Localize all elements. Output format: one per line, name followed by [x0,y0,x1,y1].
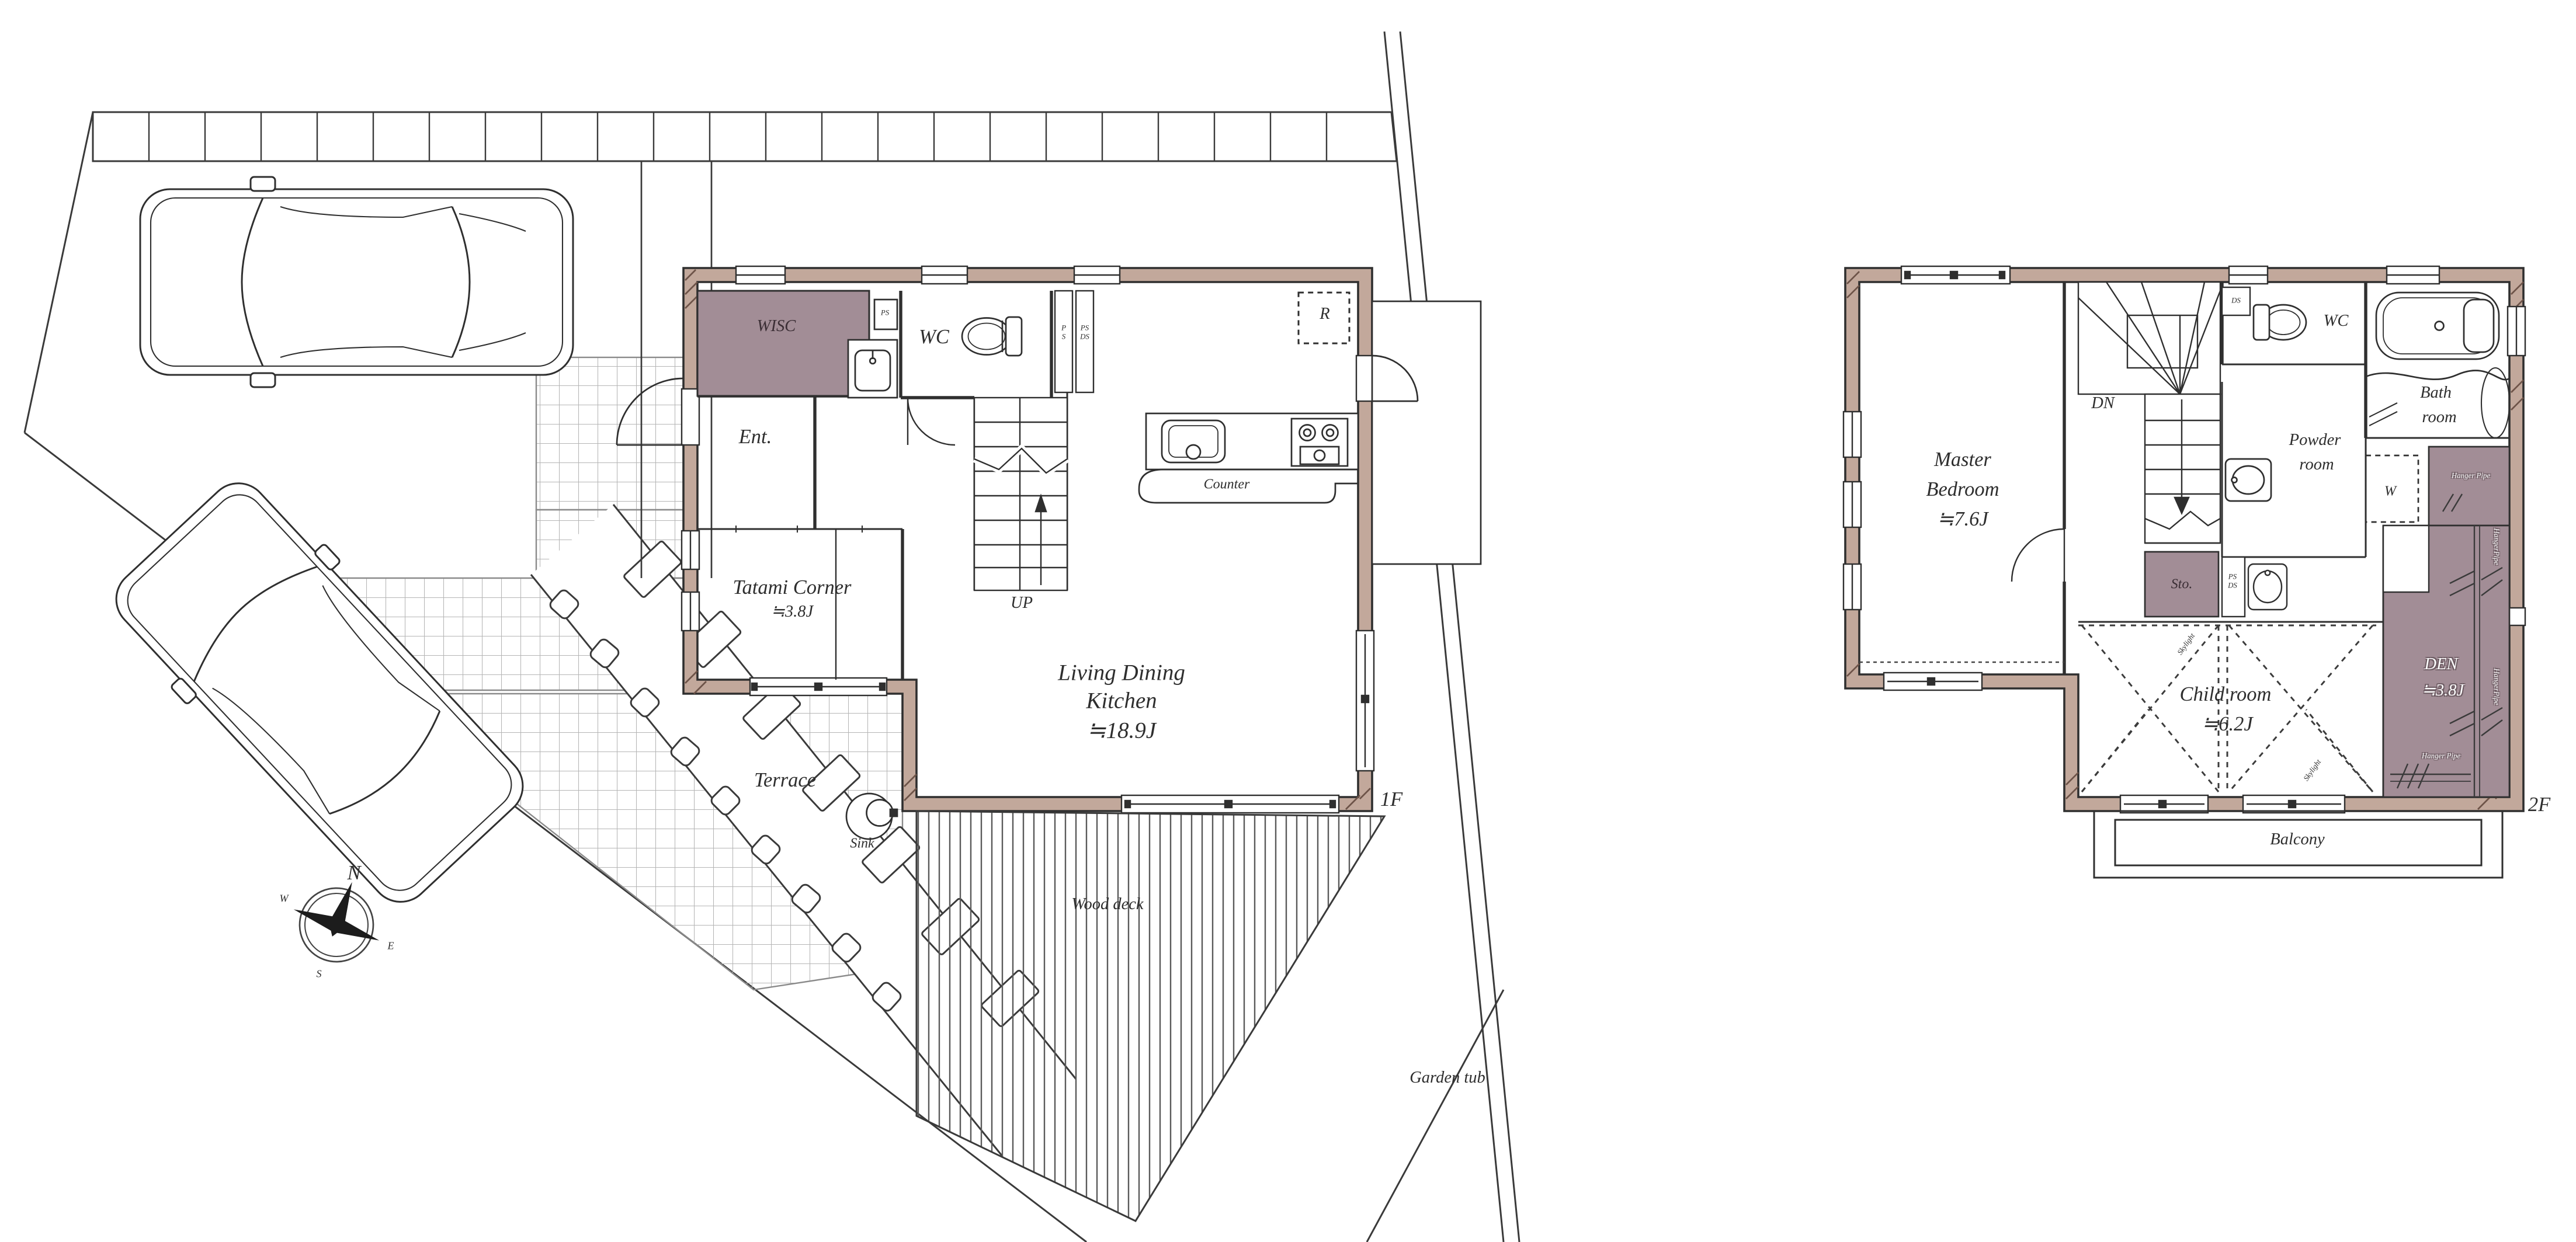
label-dn: DN [2091,398,2115,415]
car-2 [95,462,544,922]
side-service-area [1372,301,1481,564]
entrance-porch-tiles [536,357,683,510]
stairs-1f [974,398,1067,590]
shaft-label-ps-box: PS [881,309,889,318]
room-label-tatami: Tatami Corner [733,578,852,599]
room-label-den: DEN [2425,659,2458,676]
room-label-ldk-1: Living Dining [1058,661,1185,685]
label-refrigerator: R [1320,308,1329,326]
room-label-powder-1: Powder [2289,434,2341,452]
toilet-1f [962,317,1022,356]
shaft-label-p: PS [1061,325,1066,341]
label-balcony: Balcony [2270,834,2324,851]
room-label-ent: Ent. [739,427,772,448]
room-label-master-1: Master [1934,450,1991,471]
wc-door-1f [908,398,955,445]
label-washer: W [2384,485,2396,499]
sidewalk-strip [93,112,1397,161]
east-boundary-line-2 [1400,32,1519,1242]
room-label-child: Child room [2180,685,2272,706]
label-counter: Counter [1204,478,1250,492]
washbasin-1f [848,340,897,398]
label-hanger-pipe-v2: HangerPipe [2491,668,2499,705]
building-2f [1844,266,2525,878]
floorplan-page: WISC PS WC PS PSDS Ent. UP Counter R Tat… [0,0,2576,1242]
room-label-wisc: WISC [757,321,796,338]
label-hanger-pipe-bottom: Hanger Pipe [2422,753,2460,761]
master-door-2f [2012,529,2064,582]
wisc-room [697,291,869,396]
west-boundary-line [25,112,93,433]
room-label-bath-2: room [2422,412,2456,429]
room-size-den: ≒3.8J [2422,685,2464,702]
floorplan-drawing [0,0,2576,1242]
room-size-child: ≒6.2J [2202,715,2252,736]
room-label-bath-1: Bath [2420,387,2452,405]
room-label-master-2: Bedroom [1926,480,1999,501]
floor-tag-1f: 1F [1380,790,1402,811]
compass-w: W [280,895,289,906]
east-boundary-line-1 [1384,32,1504,1242]
label-hanger-pipe-v1: HangerPipe [2491,528,2499,565]
shaft-label-psds: PSDS [1080,325,1089,341]
label-up: UP [1011,597,1033,615]
shafts-1f [1055,291,1093,392]
powder-basin-2f [2226,459,2271,501]
shaft-label-ps-2f: PSDS [2228,574,2237,590]
label-sink: Sink [850,837,874,851]
room-label-wc-1f: WC [919,328,949,349]
floor-tag-2f: 2F [2528,795,2550,816]
room-label-ldk-2: Kitchen [1086,689,1157,713]
compass-s: S [317,970,322,982]
hall-basin-2f [2248,564,2287,610]
room-size-master: ≒7.6J [1937,510,1988,531]
garden-tub-boundary [1367,990,1504,1242]
skylight-marks [2078,625,2376,792]
label-garden-tub: Garden tub [1409,1072,1485,1090]
hanger-closet-2f [2429,447,2509,526]
wood-deck [916,811,1384,1221]
label-hanger-pipe-top: Hanger Pipe [2452,472,2490,481]
room-label-sto: Sto. [2171,577,2193,592]
compass-n: N [347,864,360,885]
toilet-2f [2254,305,2306,340]
room-label-powder-2: room [2299,459,2334,476]
room-size-ldk: ≒18.9J [1087,719,1156,743]
label-wood-deck: Wood deck [1071,899,1143,916]
label-terrace: Terrace [754,771,816,792]
car-1 [140,177,573,387]
room-label-wc-2f: WC [2324,315,2349,333]
compass-e: E [387,942,394,954]
shaft-label-ds-2f: DS [2231,297,2241,305]
room-size-tatami: ≒3.8J [771,606,813,624]
